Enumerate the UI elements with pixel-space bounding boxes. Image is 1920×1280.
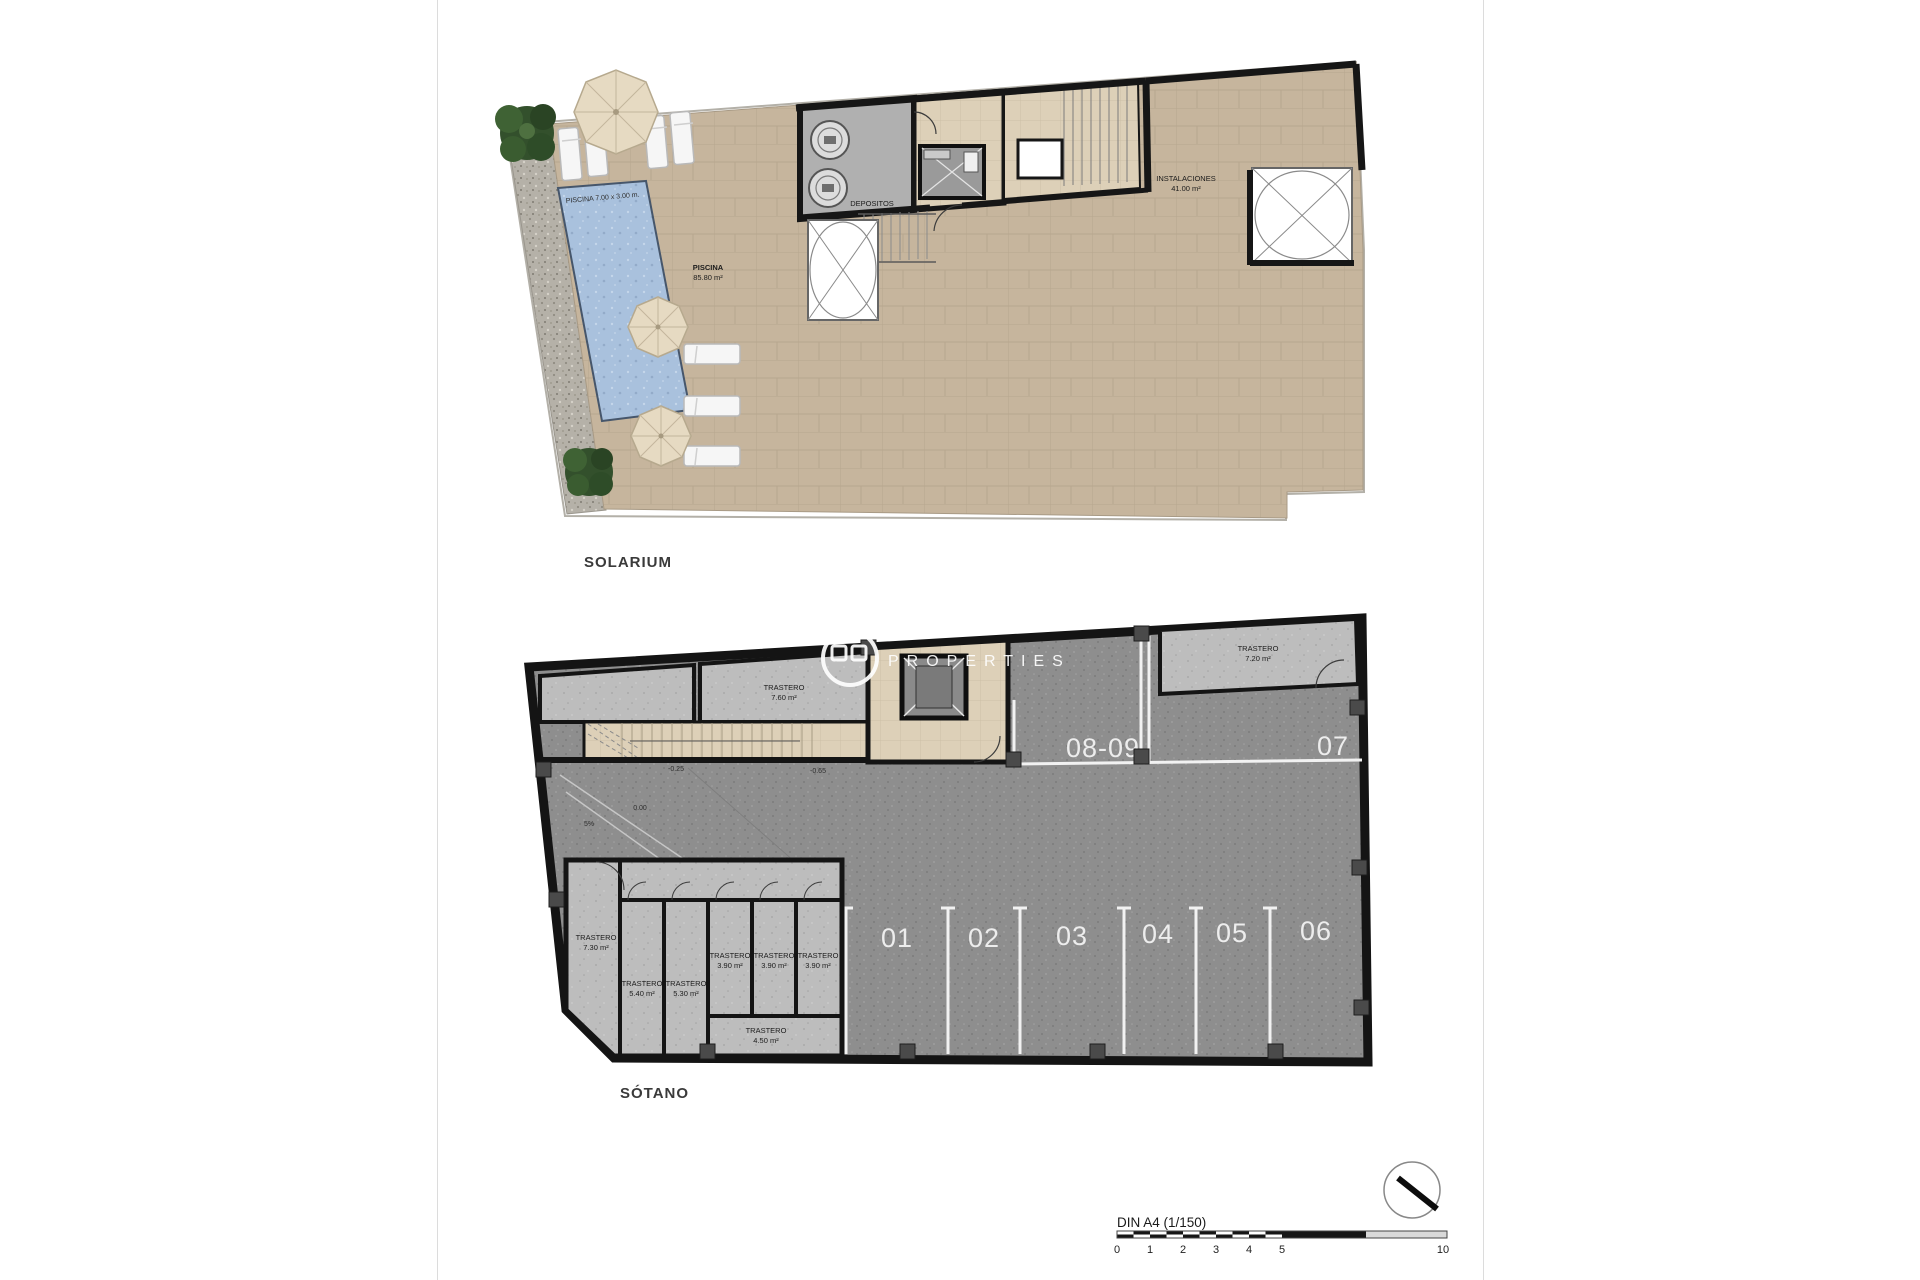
storage-room-top: TRASTERO 7.60 m² xyxy=(700,652,868,722)
north-arrow-icon xyxy=(1384,1162,1440,1218)
storage-area: 7.20 m² xyxy=(1245,654,1271,663)
page-border-right xyxy=(1483,0,1484,1280)
parking-space-label: 08-09 xyxy=(1066,733,1140,763)
svg-text:3: 3 xyxy=(1213,1244,1219,1256)
storage-block: TRASTERO 7.30 m² TRASTERO 5.40 m² TRASTE… xyxy=(566,860,842,1056)
page-border-left xyxy=(437,0,438,1280)
pool-name: PISCINA xyxy=(693,263,724,272)
ramp-slope-label: 5% xyxy=(584,821,594,828)
storage-area: 5.30 m² xyxy=(673,989,699,998)
plant-icon-bottom xyxy=(563,448,613,496)
storage-name: TRASTERO xyxy=(746,1026,787,1035)
sotano-title: SÓTANO xyxy=(620,1084,689,1102)
deposit-tank-icon xyxy=(809,169,847,207)
umbrella-icon xyxy=(574,70,658,154)
storage-area: 7.60 m² xyxy=(771,693,797,702)
parking-space-label: 02 xyxy=(968,923,1000,953)
svg-text:2: 2 xyxy=(1180,1244,1186,1256)
deposit-tank-icon xyxy=(811,121,849,159)
parking-space-label: 06 xyxy=(1300,916,1332,946)
scale-ticks: 0 1 2 3 4 5 10 xyxy=(1114,1244,1449,1256)
scale-bar-segments xyxy=(1117,1231,1447,1238)
storage-name: TRASTERO xyxy=(622,979,663,988)
scale-label: DIN A4 (1/150) xyxy=(1117,1215,1206,1230)
svg-text:1: 1 xyxy=(1147,1244,1153,1256)
pool-area-label: PISCINA 85.80 m² xyxy=(693,263,724,282)
storage-name: TRASTERO xyxy=(1238,644,1279,653)
solarium-plan: PISCINA 7.00 x 3.00 m. PISCINA 85.80 m² xyxy=(495,62,1364,571)
level-label: -0.25 xyxy=(668,766,684,773)
elevator-icon xyxy=(920,146,984,198)
level-label: -0.65 xyxy=(810,768,826,775)
svg-text:5: 5 xyxy=(1279,1244,1285,1256)
level-label: 0.00 xyxy=(633,805,647,812)
depositos-label: DEPOSITOS xyxy=(850,199,894,208)
depositos-room: DEPOSITOS xyxy=(800,98,914,219)
basement-plan: TRASTERO 7.60 m² xyxy=(529,618,1369,1102)
storage-area: 3.90 m² xyxy=(761,961,787,970)
parking-space-label: 04 xyxy=(1142,919,1174,949)
svg-text:0: 0 xyxy=(1114,1244,1120,1256)
floorplan-drawing: PISCINA 7.00 x 3.00 m. PISCINA 85.80 m² xyxy=(0,0,1920,1280)
umbrella-icon-mid xyxy=(628,297,688,357)
watermark-text: PROPERTIES xyxy=(888,653,1071,670)
storage-name: TRASTERO xyxy=(798,951,839,960)
storage-name: TRASTERO xyxy=(710,951,751,960)
storage-area: 5.40 m² xyxy=(629,989,655,998)
storage-name: TRASTERO xyxy=(666,979,707,988)
storage-area: 7.30 m² xyxy=(583,943,609,952)
floorplan-sheet: PISCINA 7.00 x 3.00 m. PISCINA 85.80 m² xyxy=(0,0,1920,1280)
stair-landing xyxy=(1018,140,1062,178)
parking-space-label: 03 xyxy=(1056,921,1088,951)
skylight-icon xyxy=(808,220,878,320)
storage-area: 4.50 m² xyxy=(753,1036,779,1045)
storage-name: TRASTERO xyxy=(576,933,617,942)
instalaciones-area: 41.00 m² xyxy=(1171,184,1201,193)
basement-stairs-icon xyxy=(540,722,868,760)
parking-space-label: 05 xyxy=(1216,918,1248,948)
storage-name: TRASTERO xyxy=(764,683,805,692)
plant-icon-top xyxy=(495,104,556,162)
svg-text:10: 10 xyxy=(1437,1244,1449,1256)
parking-space-label: 07 xyxy=(1317,731,1349,761)
parking-space-label: 01 xyxy=(881,923,913,953)
sun-lounger-icons-bottom xyxy=(684,344,740,466)
svg-text:4: 4 xyxy=(1246,1244,1252,1256)
upper-stair-room xyxy=(540,665,694,722)
pool-area: 85.80 m² xyxy=(693,273,723,282)
solarium-title: SOLARIUM xyxy=(584,554,672,571)
storage-area: 3.90 m² xyxy=(805,961,831,970)
storage-name: TRASTERO xyxy=(754,951,795,960)
storage-area: 3.90 m² xyxy=(717,961,743,970)
scale-bar: DIN A4 (1/150) 0 1 2 3 4 5 10 xyxy=(1114,1215,1449,1256)
umbrella-icon-low xyxy=(631,406,691,466)
instalaciones-name: INSTALACIONES xyxy=(1156,174,1215,183)
skylight-icon xyxy=(1250,168,1354,265)
storage-room-topright: TRASTERO 7.20 m² xyxy=(1160,619,1358,694)
